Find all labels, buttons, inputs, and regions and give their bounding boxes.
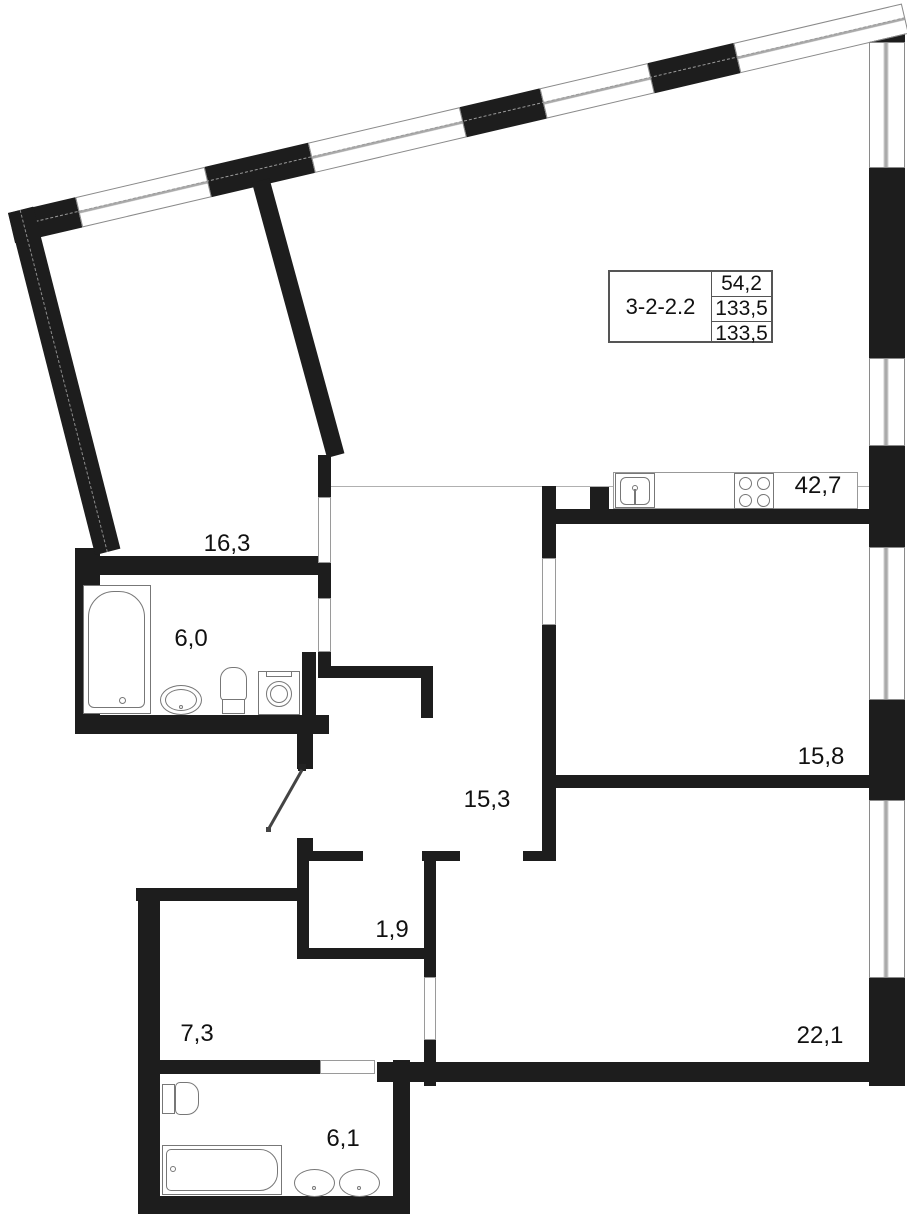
entry-door-icon (0, 0, 907, 1214)
door-leaf-end-icon (266, 827, 271, 832)
door-leaf-icon (268, 770, 302, 830)
floor-plan: 16,3 6,0 42,7 15,8 15,3 1,9 7,3 22,1 6,1… (0, 0, 907, 1214)
door-hinge-icon (298, 764, 306, 771)
